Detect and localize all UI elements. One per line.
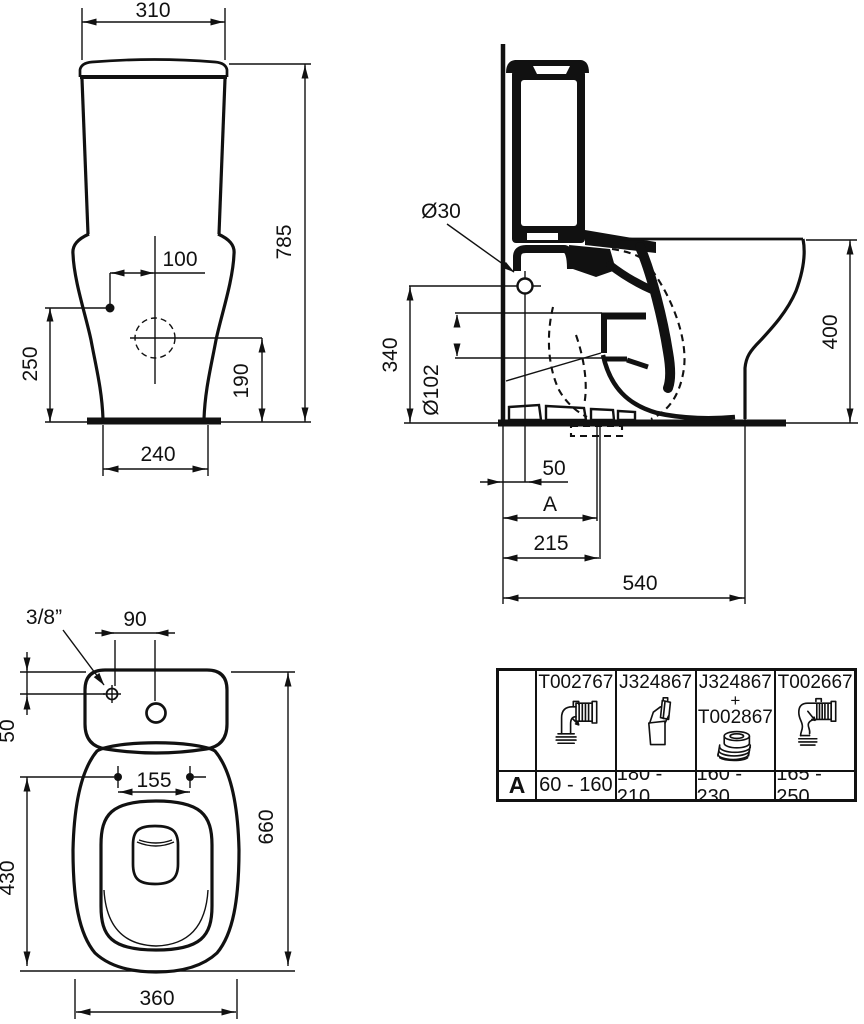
side-view: Ø30 340 Ø102 400 50 [379,44,858,604]
dim-label: 400 [819,314,842,349]
cistern-lid [80,60,227,78]
dim-label: 240 [140,443,175,466]
dim-label: 360 [139,987,174,1010]
dim-label: 540 [622,572,657,595]
dim-label: 3/8” [26,606,62,629]
dim-label: 90 [123,608,146,631]
dim-label: 190 [230,363,253,398]
drawing-svg: 310 785 100 250 190 [0,0,864,1024]
dim-label: 100 [162,248,197,271]
dim-rim-height-400: 400 [806,240,857,423]
plus-sign: + [730,693,740,708]
dim-depth-540: 540 [503,572,745,598]
dim-overall-length-660: 660 [20,672,295,971]
eccentric-ring-connector-icon [708,728,762,764]
dim-label: 250 [19,346,42,381]
dim-label: 310 [135,0,170,22]
range-cell-2: 180 - 210 [615,770,695,799]
tank-plan [85,670,227,753]
dim-label: A [543,493,557,516]
range-value: 160 - 230 [697,770,775,799]
water-area [133,826,178,884]
drain-connector-table: T002767 J324867 J324867 + T002867 [496,668,857,802]
range-cell-3: 160 - 230 [695,770,775,799]
dim-seat-holes-155: 155 [20,766,206,792]
range-cell-1: 60 - 160 [535,770,615,799]
connector-cell-4: T002667 [774,671,854,770]
dim-seat-length-430: 430 [0,777,27,966]
cistern-body [82,79,88,234]
elbow-flexible-connector-icon [549,693,603,753]
bowl-profile [745,239,804,419]
row-label-cell: A [499,770,535,799]
bowl-outline [73,234,103,419]
range-value: 60 - 160 [539,774,612,797]
part-number: T002867 [698,708,773,728]
angled-connector-icon [629,693,683,753]
dim-label: 50 [0,719,19,742]
dim-label: Ø102 [420,364,443,415]
dim-label: 785 [273,224,296,259]
dim-width-310: 310 [82,0,225,60]
toilet-technical-drawing: 310 785 100 250 190 [0,0,864,1024]
dim-label: 155 [136,769,171,792]
plan-view: 3/8” 90 50 155 [0,606,295,1019]
dim-outlet-distance-A: A [503,493,597,518]
front-view: 310 785 100 250 190 [19,0,311,476]
connector-cell-2: J324867 [615,671,695,770]
connector-cell-3: J324867 + T002867 [695,671,775,770]
dim-label: 660 [255,809,278,844]
dim-outlet-height-190: 190 [221,338,311,422]
seat-ring [101,801,212,950]
dim-hole-height-340: 340 [379,286,410,423]
dim-label: 215 [533,532,568,555]
dim-base-width-240: 240 [103,425,208,476]
dim-inlet-height-250: 250 [19,308,87,422]
dim-inlet-offset-90: 90 [95,608,175,701]
row-label: A [509,772,526,799]
water-inlet-mark: 3/8” [26,606,121,703]
cistern-section [506,60,589,243]
table-corner-cell [499,671,535,770]
floor-shims [509,405,635,420]
range-value: 165 - 250 [776,770,854,799]
dim-bowl-width-360: 360 [75,979,237,1019]
part-number: T002767 [538,673,613,693]
dim-label: 50 [542,457,565,480]
dim-label: 430 [0,860,19,895]
dim-inlet-offset-100: 100 [110,248,205,273]
range-value: 180 - 210 [617,770,695,799]
dim-label: Ø30 [421,200,461,223]
dim-hole-offset-50: 50 [480,457,568,482]
s-bend-flexible-connector-icon [788,693,842,753]
range-cell-4: 165 - 250 [774,770,854,799]
part-number: J324867 [699,673,772,693]
part-number: T002667 [778,673,853,693]
spud-hole [147,704,166,723]
dim-outlet-diameter-102: Ø102 [420,313,605,416]
dim-outlet-center-215: 215 [503,532,599,558]
part-number: J324867 [619,673,692,693]
connector-cell-1: T002767 [535,671,615,770]
dim-label: 340 [379,337,402,372]
